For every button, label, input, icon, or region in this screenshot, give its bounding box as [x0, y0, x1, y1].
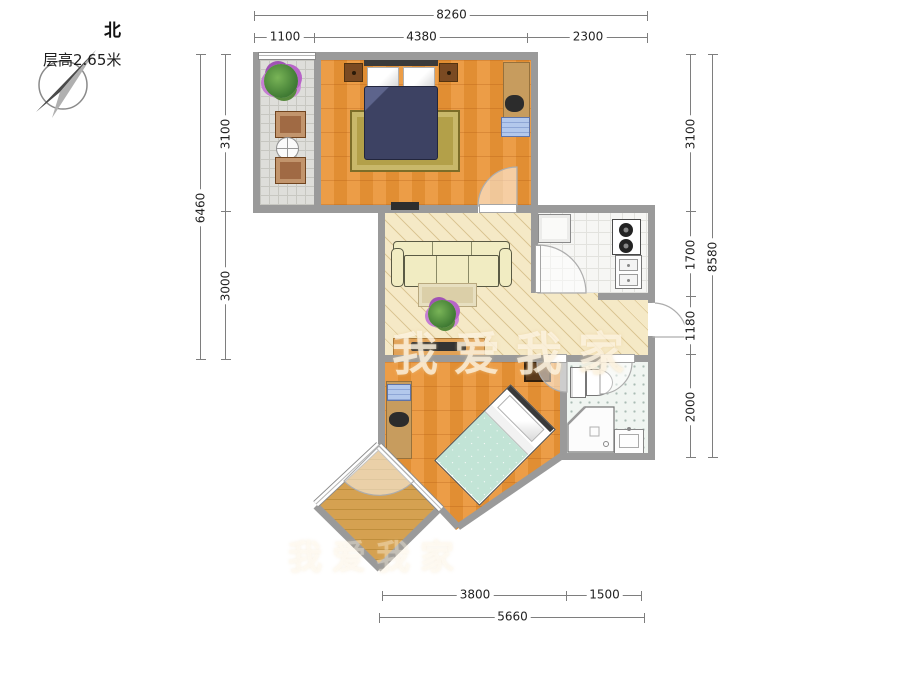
north-label: 北 — [104, 21, 121, 41]
shower — [568, 407, 614, 452]
bedroom-1-door — [479, 204, 517, 213]
plan-overlay: 北 — [0, 0, 906, 680]
wall-tv — [391, 202, 419, 210]
dim-bottom-total: 5660 — [380, 617, 645, 618]
dim-right-seg-3: 1180 — [690, 297, 691, 355]
dim-right-seg-4: 2000 — [690, 355, 691, 458]
dim-top-seg-1: 1100 — [255, 37, 315, 38]
dim-top-seg-2: 4380 — [315, 37, 528, 38]
dim-top-seg-3: 2300 — [528, 37, 648, 38]
kitchen-door-arc — [538, 245, 586, 293]
dim-right-seg-2: 1700 — [690, 212, 691, 297]
dim-left-seg-2: 3000 — [225, 212, 226, 360]
kitchen-door — [535, 245, 541, 293]
dim-right-total: 8580 — [712, 55, 713, 458]
bedroom-2-door-arc — [537, 362, 567, 392]
bathroom-door — [600, 354, 635, 363]
bedroom-1-door-arc — [478, 167, 517, 206]
entry-door-gap — [648, 303, 655, 336]
dim-left-seg-1: 3100 — [225, 55, 226, 212]
entry-door-arc — [653, 303, 687, 337]
dim-bottom-seg-2: 1500 — [567, 595, 642, 596]
door-arcs — [344, 167, 687, 495]
floor-plan: 北 8260 1100 4380 2300 6460 3100 3000 310… — [0, 0, 906, 680]
bedroom-2-door — [543, 354, 567, 363]
dim-top-total: 8260 — [255, 15, 648, 16]
bathroom-door-arc — [600, 362, 632, 394]
dim-bottom-seg-1: 3800 — [383, 595, 567, 596]
dim-left-total: 6460 — [200, 55, 201, 360]
dim-right-seg-1: 3100 — [690, 55, 691, 212]
north-balcony-window — [258, 52, 316, 60]
balcony-door-arc — [344, 446, 414, 495]
floor-height-label: 层高2.65米 — [43, 49, 121, 70]
